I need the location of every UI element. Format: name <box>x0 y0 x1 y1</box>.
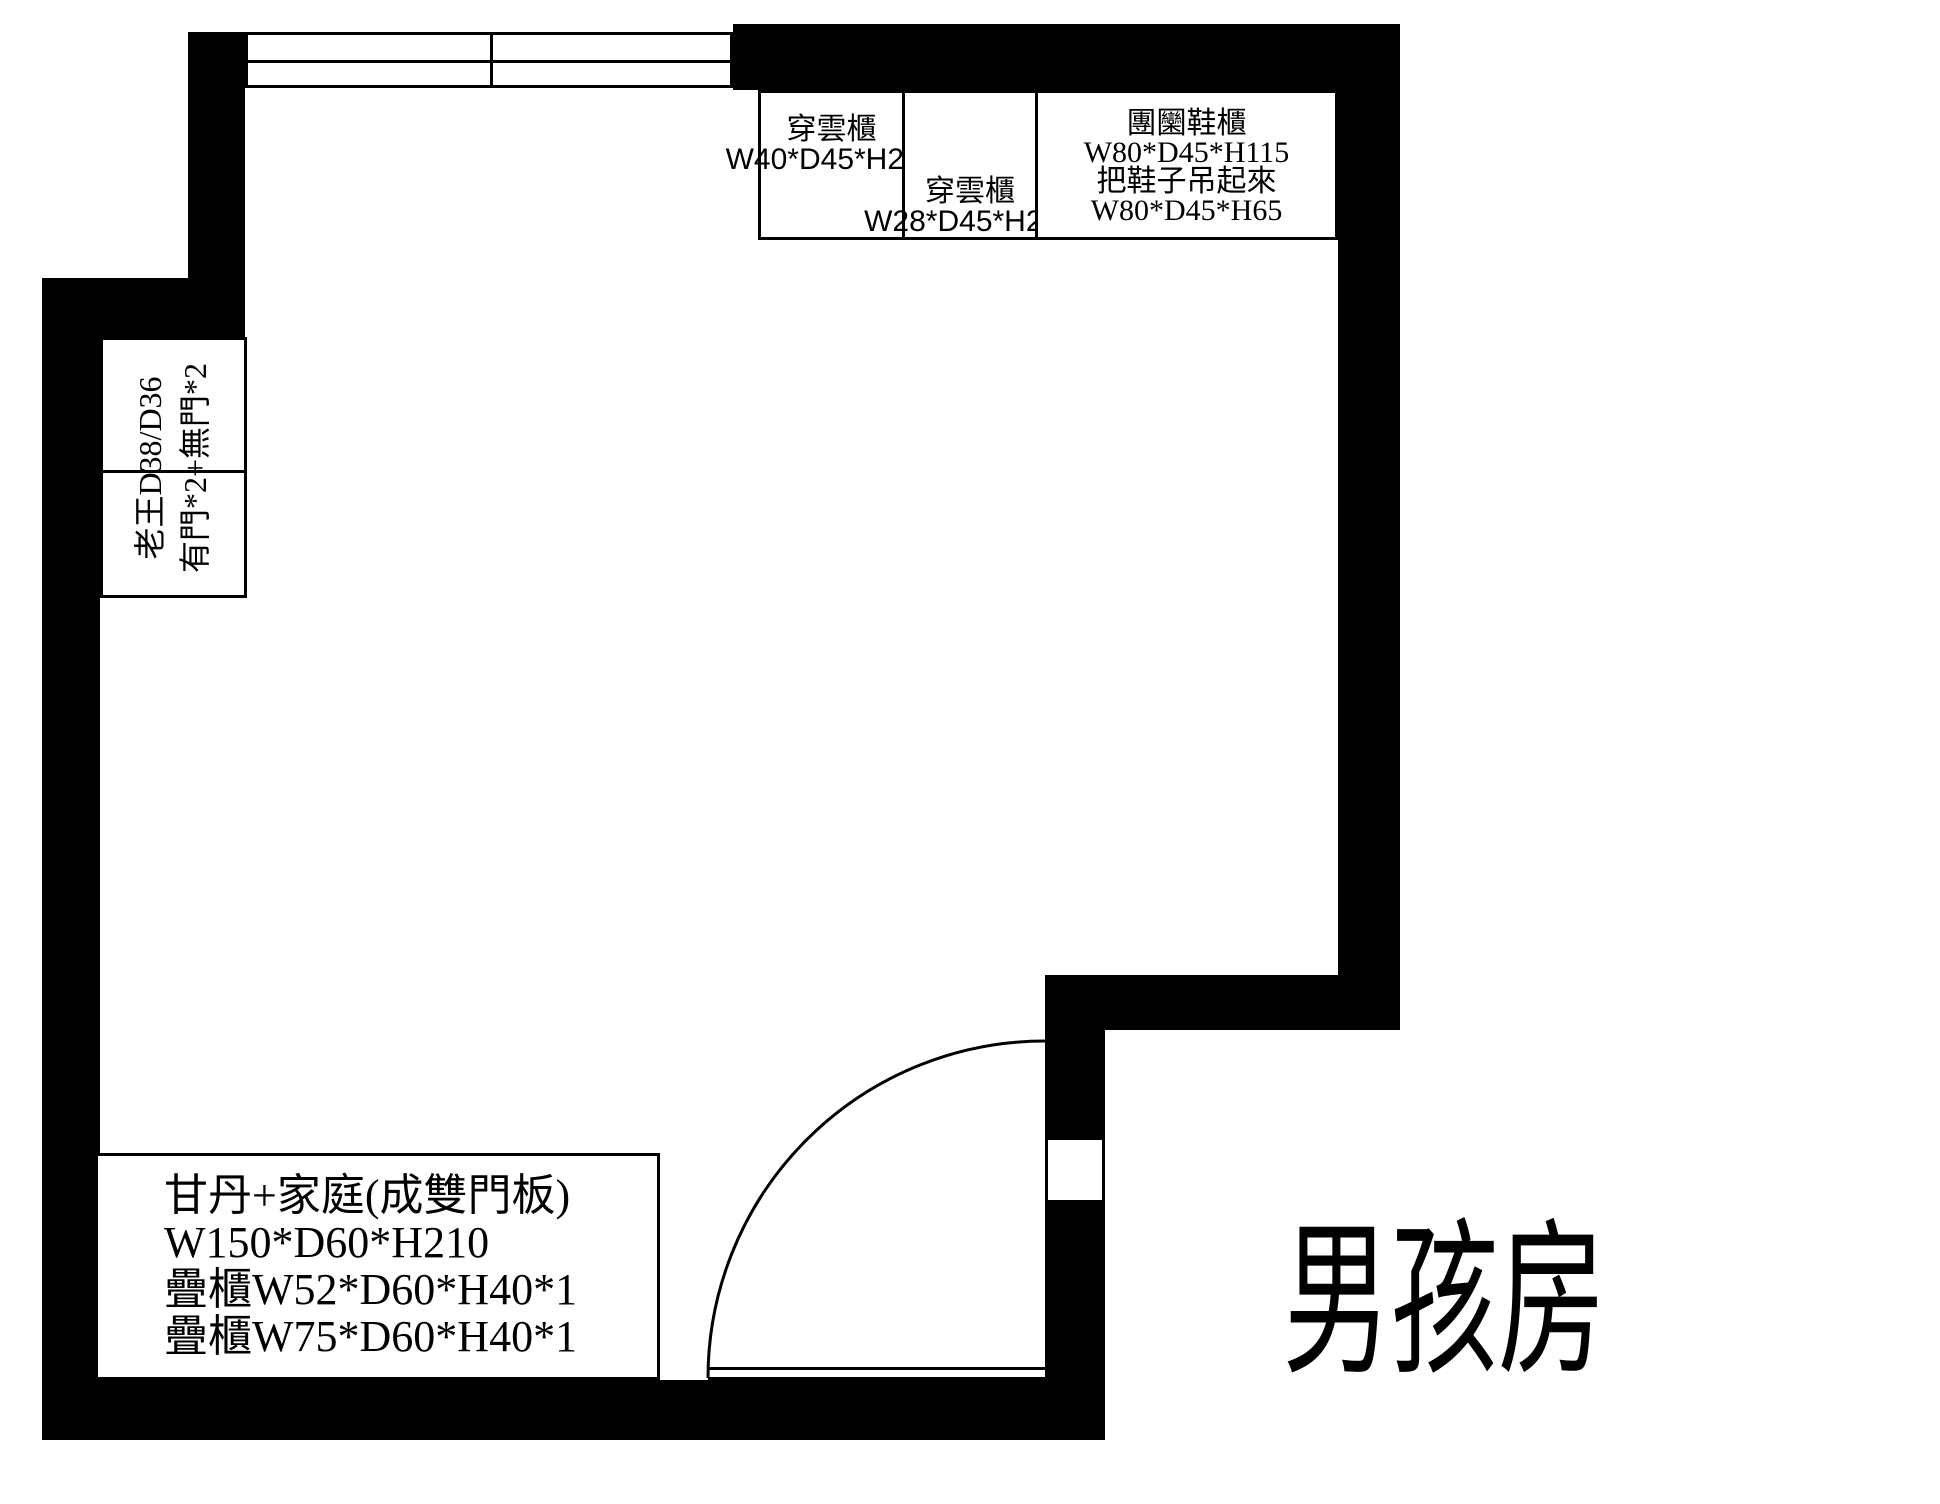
room-title: 男孩房 <box>1283 1215 1606 1391</box>
floor-plan-canvas: 穿雲櫃 W40*D45*H220 穿雲櫃 W28*D45*H220 團圞鞋櫃 W… <box>0 0 1940 1504</box>
door-swing-arc <box>0 0 1940 1504</box>
